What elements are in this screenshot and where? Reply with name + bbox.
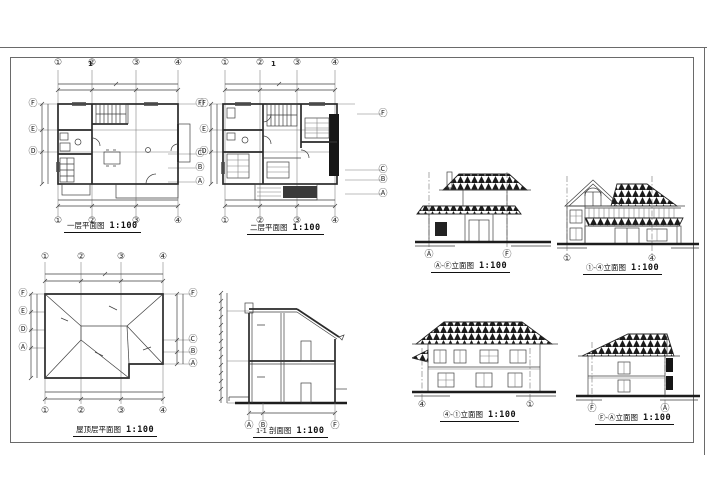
drawing-title-text: ④-①立面图 bbox=[443, 409, 483, 420]
axis-bubble: Ⓑ bbox=[378, 175, 388, 185]
axis-bubble: ① bbox=[220, 58, 230, 68]
drawing-title-text: Ⓐ-Ⓕ立面图 bbox=[434, 260, 474, 271]
axis-bubble: ① bbox=[53, 216, 63, 226]
drawing-title-text: ①-④立面图 bbox=[586, 262, 626, 273]
section-linework bbox=[205, 285, 355, 437]
axis-bubble: Ⓓ bbox=[199, 147, 209, 157]
axis-bubble: ④ bbox=[417, 400, 427, 410]
axis-bubble: ① bbox=[40, 252, 50, 262]
axis-bubble: Ⓔ bbox=[199, 125, 209, 135]
second-floor-plan-linework bbox=[205, 58, 400, 240]
section-cut-marker: 1 bbox=[271, 60, 276, 68]
axis-bubble: Ⓑ bbox=[188, 347, 198, 357]
axis-bubble: Ⓐ bbox=[195, 177, 205, 187]
blueprint-sheet: { "sheet": { "background": "#ffffff", "l… bbox=[0, 0, 707, 500]
axis-bubble: ③ bbox=[116, 252, 126, 262]
axis-bubble: Ⓐ bbox=[188, 359, 198, 369]
section-1-1: Ⓐ Ⓑ Ⓕ 1-1 剖面图 1:100 bbox=[205, 285, 355, 437]
elevation-a-f-linework bbox=[415, 162, 555, 272]
axis-bubble: ① bbox=[53, 58, 63, 68]
drawing-scale: 1:100 bbox=[479, 261, 507, 271]
axis-bubble: Ⓕ bbox=[378, 109, 388, 119]
elevation-f-a: Ⓕ Ⓐ Ⓕ-Ⓐ立面图 1:100 bbox=[570, 312, 705, 422]
axis-bubble: Ⓕ bbox=[199, 99, 209, 109]
axis-bubble: Ⓔ bbox=[18, 307, 28, 317]
drawing-title: Ⓕ-Ⓐ立面图 1:100 bbox=[595, 412, 674, 425]
first-floor-plan-linework bbox=[28, 58, 206, 240]
drawing-scale: 1:100 bbox=[296, 426, 324, 436]
section-cut-marker: 1 bbox=[88, 60, 93, 68]
axis-bubble: Ⓕ bbox=[188, 289, 198, 299]
axis-bubble: Ⓒ bbox=[378, 165, 388, 175]
axis-bubble: ④ bbox=[158, 252, 168, 262]
elevation-1-4-linework bbox=[555, 162, 703, 274]
elevation-a-f: Ⓐ Ⓕ Ⓐ-Ⓕ立面图 1:100 bbox=[415, 162, 555, 272]
axis-bubble: ② bbox=[76, 406, 86, 416]
axis-bubble: ④ bbox=[330, 58, 340, 68]
drawing-title: 一层平面图 1:100 bbox=[64, 220, 141, 233]
elevation-4-1: ④ ① ④-①立面图 1:100 bbox=[412, 312, 560, 418]
drawing-title-text: 二层平面图 bbox=[250, 222, 288, 233]
axis-bubble: ① bbox=[220, 216, 230, 226]
axis-bubble: Ⓕ bbox=[28, 99, 38, 109]
drawing-scale: 1:100 bbox=[126, 425, 154, 435]
axis-bubble: ③ bbox=[116, 406, 126, 416]
axis-bubble: Ⓐ bbox=[378, 189, 388, 199]
elevation-1-4: ① ④ ①-④立面图 1:100 bbox=[555, 162, 703, 274]
drawing-title-text: 屋顶层平面图 bbox=[76, 424, 121, 435]
second-floor-plan: ① ② ③ ④ ① ② ③ ④ Ⓕ Ⓔ Ⓓ Ⓕ Ⓒ Ⓑ Ⓐ 1 二层平面图 1:… bbox=[205, 58, 400, 240]
drawing-title: Ⓐ-Ⓕ立面图 1:100 bbox=[431, 260, 510, 273]
axis-bubble: ① bbox=[562, 254, 572, 264]
axis-bubble: ② bbox=[255, 58, 265, 68]
drawing-title-text: 一层平面图 bbox=[67, 220, 105, 231]
axis-bubble: ③ bbox=[292, 58, 302, 68]
axis-bubble: ① bbox=[40, 406, 50, 416]
drawing-title: 二层平面图 1:100 bbox=[247, 222, 324, 235]
axis-bubble: ① bbox=[525, 400, 535, 410]
axis-bubble: Ⓐ bbox=[424, 250, 434, 260]
axis-bubble: ④ bbox=[173, 58, 183, 68]
axis-bubble: Ⓓ bbox=[18, 325, 28, 335]
axis-bubble: Ⓕ bbox=[330, 421, 340, 431]
axis-bubble: ④ bbox=[330, 216, 340, 226]
first-floor-plan: ① ② ③ ④ ① ② ③ ④ Ⓕ Ⓔ Ⓓ Ⓕ Ⓒ Ⓑ Ⓐ 1 一层平面图 1:… bbox=[28, 58, 206, 240]
drawing-scale: 1:100 bbox=[293, 223, 321, 233]
axis-bubble: Ⓐ bbox=[18, 343, 28, 353]
sheet-outer-top-border bbox=[0, 47, 707, 48]
drawing-title: 屋顶层平面图 1:100 bbox=[73, 424, 157, 437]
elevation-4-1-linework bbox=[412, 312, 560, 418]
axis-bubble: ④ bbox=[173, 216, 183, 226]
drawing-scale: 1:100 bbox=[110, 221, 138, 231]
axis-bubble: Ⓕ bbox=[18, 289, 28, 299]
roof-plan: ① ② ③ ④ ① ② ③ ④ Ⓕ Ⓔ Ⓓ Ⓐ Ⓕ Ⓒ Ⓑ Ⓐ 屋顶层平面图 1… bbox=[25, 252, 210, 442]
drawing-title: ④-①立面图 1:100 bbox=[440, 409, 519, 422]
axis-bubble: Ⓑ bbox=[195, 163, 205, 173]
drawing-title: ①-④立面图 1:100 bbox=[583, 262, 662, 275]
drawing-title-text: Ⓕ-Ⓐ立面图 bbox=[598, 412, 638, 423]
axis-bubble: Ⓓ bbox=[28, 147, 38, 157]
axis-bubble: ④ bbox=[158, 406, 168, 416]
axis-bubble: Ⓕ bbox=[502, 250, 512, 260]
axis-bubble: Ⓒ bbox=[188, 335, 198, 345]
drawing-scale: 1:100 bbox=[488, 410, 516, 420]
drawing-title-text: 1-1 剖面图 bbox=[256, 425, 291, 436]
drawing-scale: 1:100 bbox=[631, 263, 659, 273]
drawing-scale: 1:100 bbox=[643, 413, 671, 423]
axis-bubble: ② bbox=[76, 252, 86, 262]
axis-bubble: Ⓔ bbox=[28, 125, 38, 135]
drawing-title: 1-1 剖面图 1:100 bbox=[253, 425, 328, 438]
axis-bubble: ③ bbox=[131, 58, 141, 68]
